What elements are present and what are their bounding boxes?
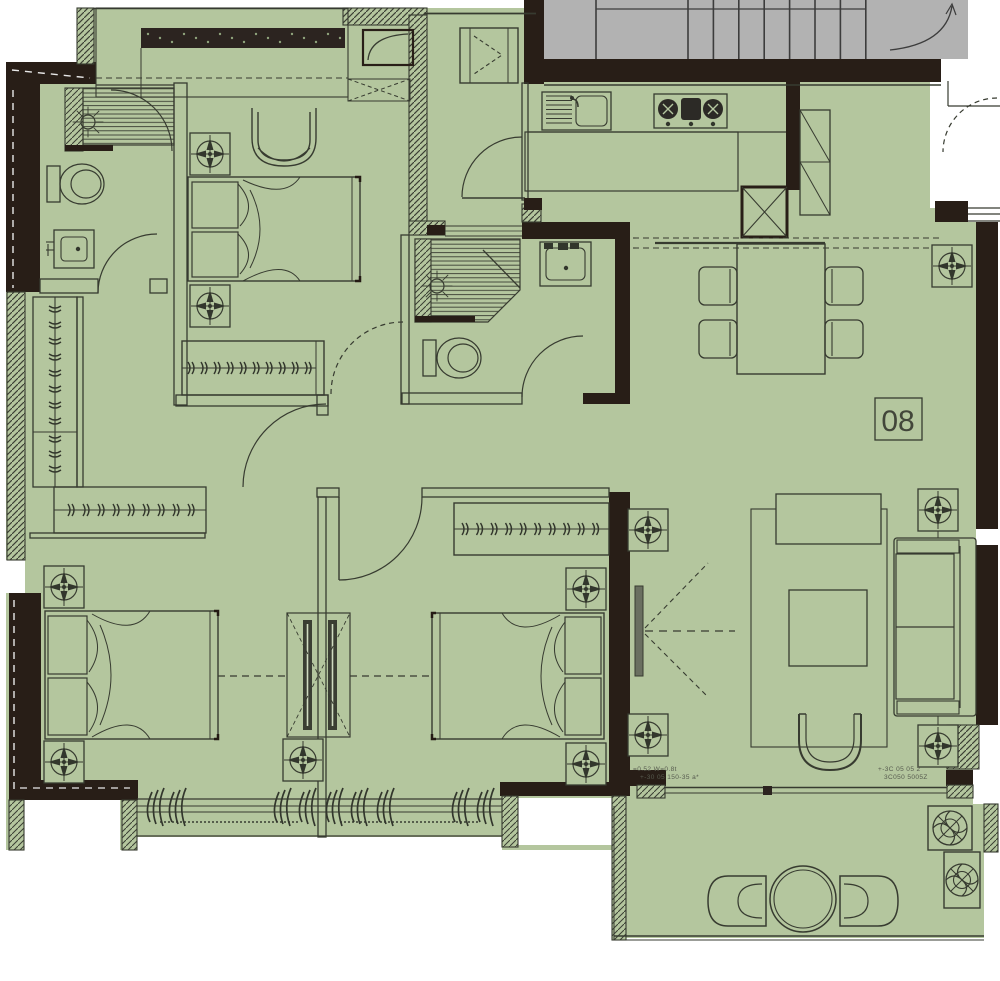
svg-text:=0.52 W=0.8t: =0.52 W=0.8t xyxy=(633,766,677,773)
svg-text:+-3C 05 05 2: +-3C 05 05 2 xyxy=(878,766,921,773)
svg-text:3C050 5005Z: 3C050 5005Z xyxy=(884,774,928,781)
svg-text:08: 08 xyxy=(881,405,914,438)
svg-text:+-30 05 150-35 a*: +-30 05 150-35 a* xyxy=(640,774,699,781)
